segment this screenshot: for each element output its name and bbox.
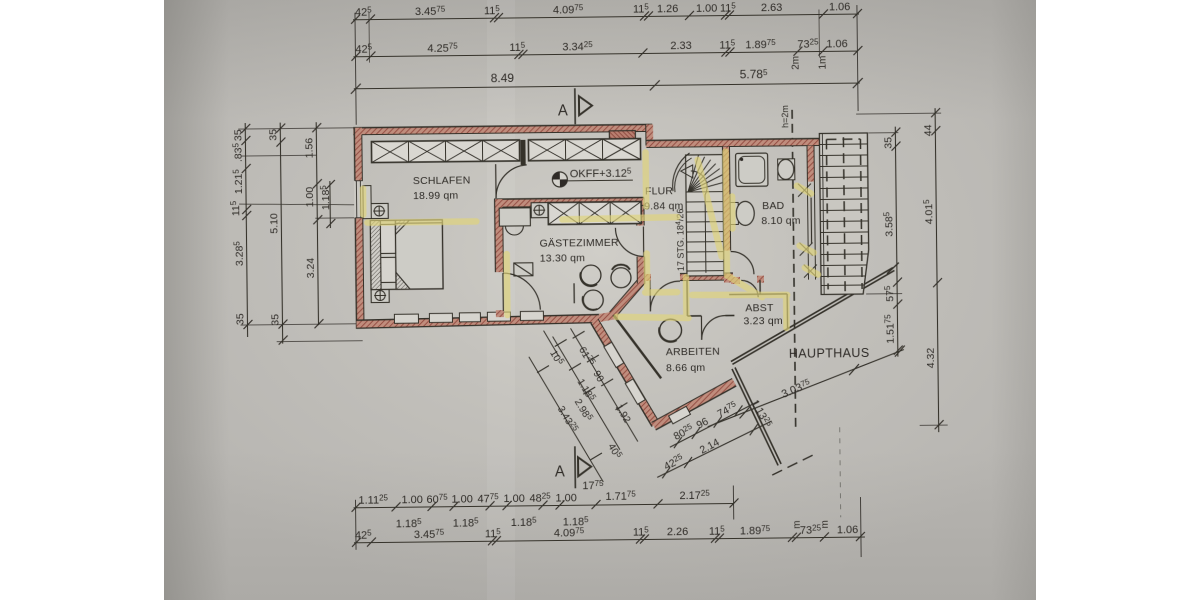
svg-text:4.32: 4.32 — [925, 348, 937, 369]
svg-text:1.06: 1.06 — [826, 38, 848, 50]
svg-text:ABST: ABST — [745, 302, 774, 314]
svg-text:5.10: 5.10 — [268, 213, 280, 234]
svg-text:35: 35 — [234, 313, 246, 325]
svg-text:8.66 qm: 8.66 qm — [666, 362, 706, 374]
svg-text:2m: 2m — [790, 56, 801, 70]
svg-text:8.10 qm: 8.10 qm — [761, 215, 801, 227]
svg-text:44: 44 — [922, 124, 934, 136]
svg-text:h=2m: h=2m — [780, 105, 790, 128]
svg-text:2.63: 2.63 — [761, 2, 783, 14]
svg-text:1.00: 1.00 — [451, 493, 473, 505]
svg-text:1.00: 1.00 — [401, 494, 423, 506]
svg-text:ARBEITEN: ARBEITEN — [666, 346, 720, 359]
svg-text:1.06: 1.06 — [829, 1, 851, 13]
svg-text:2.26: 2.26 — [667, 526, 689, 538]
svg-text:1.26: 1.26 — [657, 3, 679, 15]
svg-text:3.24: 3.24 — [305, 258, 317, 279]
svg-text:BAD: BAD — [762, 200, 785, 212]
svg-text:8.49: 8.49 — [491, 71, 515, 85]
svg-text:13.30 qm: 13.30 qm — [540, 252, 586, 265]
svg-text:35: 35 — [267, 129, 279, 141]
svg-text:35: 35 — [232, 129, 244, 141]
svg-text:SCHLAFEN: SCHLAFEN — [413, 174, 471, 187]
svg-text:HAUPTHAUS: HAUPTHAUS — [789, 346, 870, 361]
svg-text:35: 35 — [882, 137, 894, 149]
svg-text:OKFF+3.125: OKFF+3.125 — [570, 167, 632, 181]
svg-text:A: A — [558, 102, 569, 120]
svg-text:A: A — [555, 463, 566, 481]
svg-text:18.99 qm: 18.99 qm — [413, 190, 459, 203]
svg-text:35: 35 — [269, 314, 281, 326]
svg-text:1m: 1m — [817, 55, 828, 69]
svg-text:3.23 qm: 3.23 qm — [743, 315, 783, 327]
svg-text:2.33: 2.33 — [670, 40, 692, 52]
svg-text:1.00: 1.00 — [555, 492, 577, 504]
svg-text:m: m — [820, 520, 831, 528]
svg-text:m: m — [792, 520, 803, 528]
svg-text:GÄSTEZIMMER: GÄSTEZIMMER — [540, 237, 620, 250]
svg-text:1.06: 1.06 — [837, 524, 859, 536]
svg-text:1.00: 1.00 — [503, 493, 525, 505]
svg-text:1.00: 1.00 — [696, 3, 718, 15]
